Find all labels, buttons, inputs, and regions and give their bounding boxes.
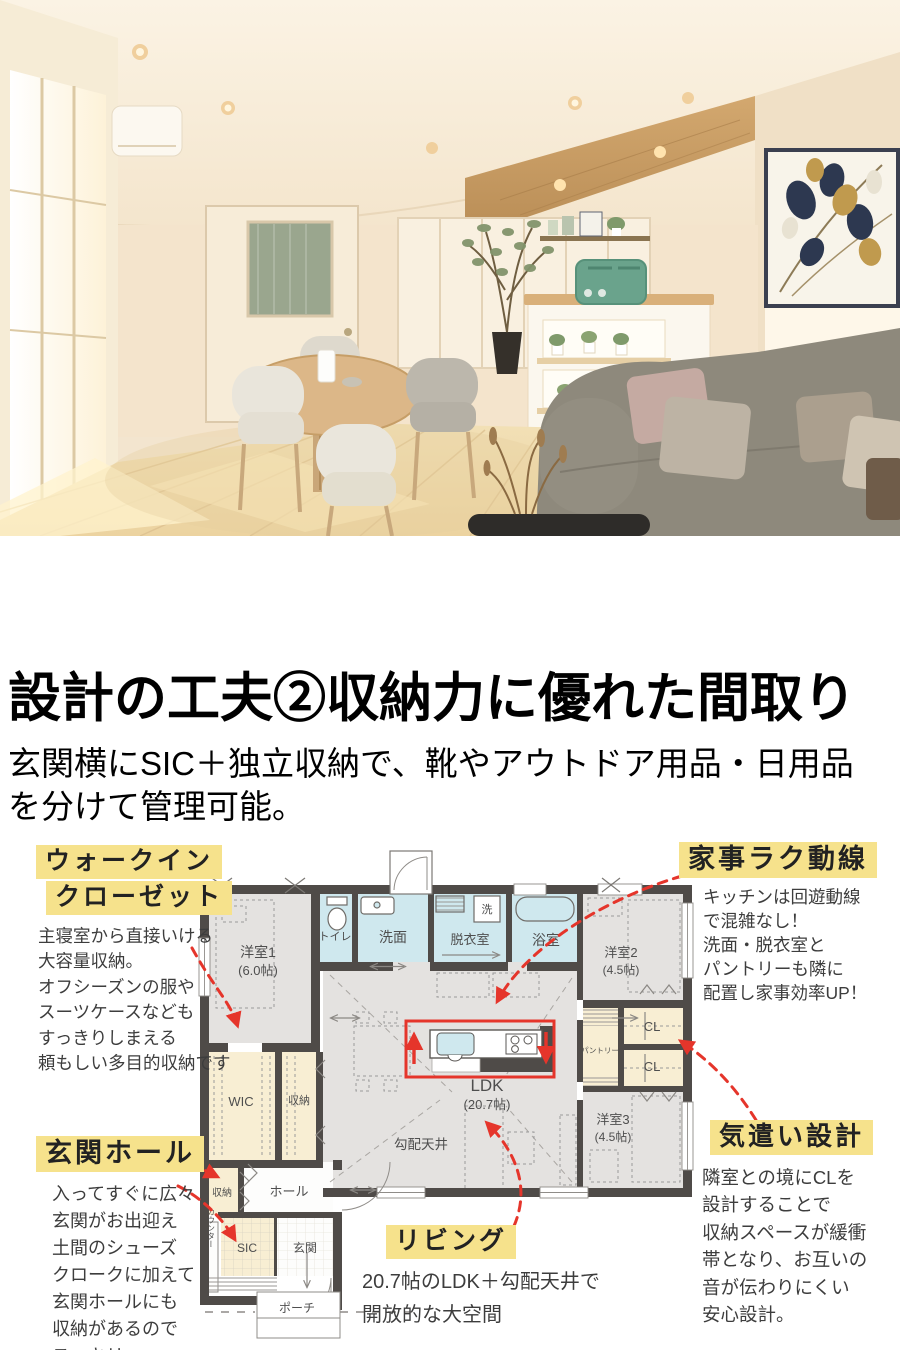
kitchen-island: [430, 1026, 554, 1072]
room-label-dressing: 脱衣室: [450, 932, 489, 947]
room-label-bedroom3-size: (4.5帖): [595, 1129, 632, 1144]
room-label-entrance: 玄関: [293, 1240, 317, 1255]
annotation-title-line2: クローゼット: [46, 881, 232, 915]
annotation-title: 気遣い設計: [710, 1120, 873, 1155]
annotation-title: 家事ラク動線: [679, 842, 877, 878]
annotation-entrance-hall: 玄関ホール 入ってすぐに広々 玄関がお出迎え 土間のシューズ クロークに加えて …: [36, 1136, 204, 1350]
room-label-wic: WIC: [228, 1094, 253, 1109]
room-label-porch: ポーチ: [279, 1301, 315, 1315]
room-label-hall: ホール: [269, 1184, 308, 1199]
green-toaster: [576, 260, 646, 304]
annotation-body: キッチンは回遊動線 で混雑なし！ 洗面・脱衣室と パントリーも隣に 配置し家事効…: [703, 885, 877, 1005]
label-sloped-ceiling: 勾配天井: [394, 1137, 448, 1152]
room-label-bedroom2: 洋室2: [604, 945, 637, 960]
headline-block: 設計の工夫②収納力に優れた間取り 玄関横にSIC＋独立収納で、靴やアウトドア用品…: [8, 656, 898, 828]
room-label-cl-lower: CL: [644, 1059, 661, 1074]
annotation-walk-in-closet: ウォークイン クローゼット 主寝室から直接いける 大容量収納。 オフシーズンの服…: [36, 845, 232, 1077]
annotation-housework-flow: 家事ラク動線 キッチンは回遊動線 で混雑なし！ 洗面・脱衣室と パントリーも隣に…: [679, 842, 877, 1005]
room-label-sic: SIC: [237, 1241, 257, 1255]
annotation-body: 入ってすぐに広々 玄関がお出迎え 土間のシューズ クロークに加えて 玄関ホールに…: [52, 1181, 204, 1350]
room-label-bedroom1-size: (6.0帖): [238, 963, 278, 978]
room-label-bedroom1: 洋室1: [240, 944, 276, 960]
room-label-counter: カウンター: [207, 1208, 216, 1248]
annotation-body: 主寝室から直接いける 大容量収納。 オフシーズンの服や スーツケースなども すっ…: [38, 924, 232, 1077]
annotation-title: リビング: [386, 1225, 516, 1259]
annotation-living: リビング 20.7帖のLDK＋勾配天井で 開放的な大空間: [362, 1225, 600, 1332]
subtitle-line-2: を分けて管理可能。: [8, 785, 898, 828]
room-label-pantry: パントリー: [581, 1046, 619, 1055]
room-label-storage-mid: 収納: [288, 1094, 310, 1107]
annotation-considerate-design: 気遣い設計 隣室との境にCLを 設計することで 収納スペースが緩衝 帯となり、お…: [702, 1120, 873, 1329]
room-label-cl-upper: CL: [644, 1019, 661, 1034]
flyer-page: 設計の工夫②収納力に優れた間取り 玄関横にSIC＋独立収納で、靴やアウトドア用品…: [0, 0, 900, 1350]
annotation-body: 隣室との境にCLを 設計することで 収納スペースが緩衝 帯となり、お互いの 音が…: [702, 1164, 873, 1329]
room-label-ldk: LDK: [470, 1076, 504, 1095]
room-label-storage-hall: 収納: [212, 1186, 232, 1199]
room-label-washroom: 洗面: [379, 929, 407, 945]
annotation-body: 20.7帖のLDK＋勾配天井で 開放的な大空間: [362, 1266, 600, 1332]
wall-art: [766, 150, 898, 306]
annotation-title: ウォークイン: [36, 845, 222, 879]
room-label-bedroom2-size: (4.5帖): [603, 962, 640, 977]
room-label-bedroom3: 洋室3: [596, 1112, 629, 1127]
page-title: 設計の工夫②収納力に優れた間取り: [8, 656, 898, 732]
annotation-title: 玄関ホール: [36, 1136, 204, 1172]
room-label-ldk-size: (20.7帖): [464, 1097, 511, 1112]
hero-photo-living-room: [0, 0, 900, 536]
subtitle-line-1: 玄関横にSIC＋独立収納で、靴やアウトドア用品・日用品: [8, 742, 898, 785]
air-conditioner: [112, 106, 182, 156]
room-label-toilet: トイレ: [319, 931, 352, 943]
room-label-washer: 洗: [482, 903, 493, 916]
page-subtitle: 玄関横にSIC＋独立収納で、靴やアウトドア用品・日用品 を分けて管理可能。: [8, 742, 898, 828]
